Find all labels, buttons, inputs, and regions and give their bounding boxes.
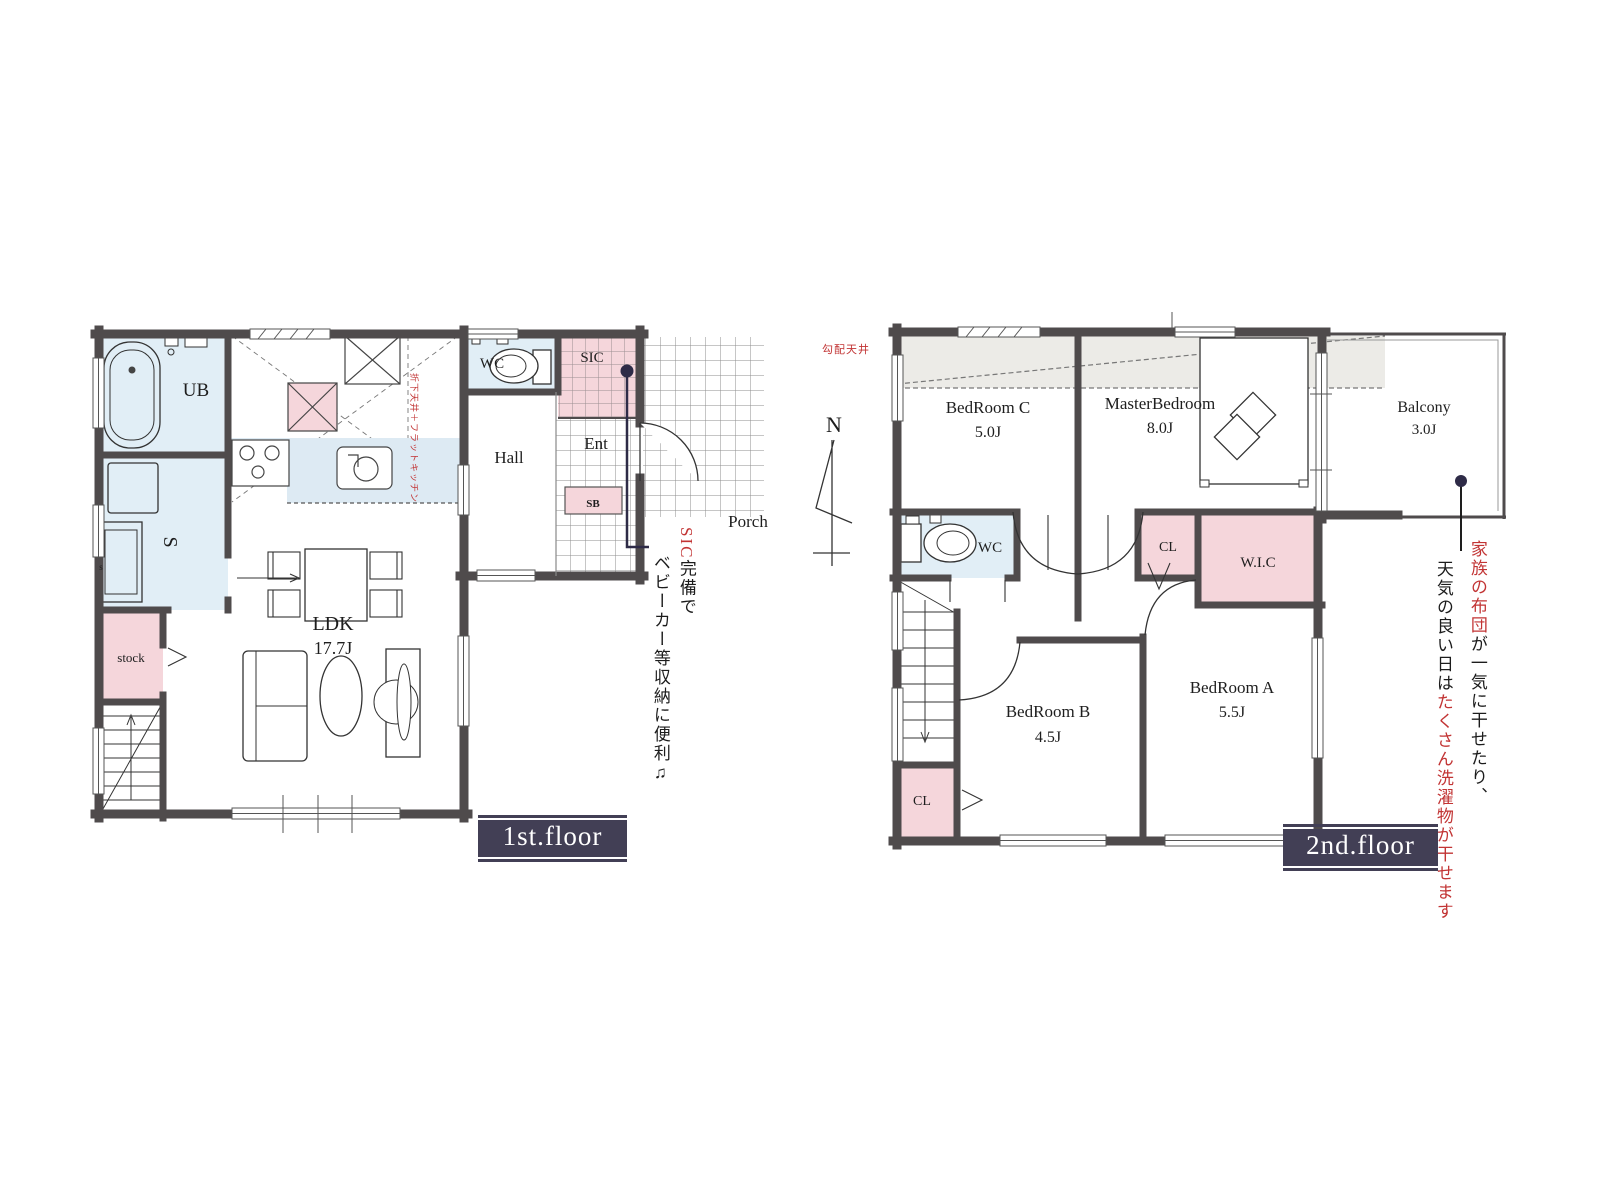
stairs-icon bbox=[99, 702, 163, 816]
balcony-annotation-col2-black: 天気の良い日は bbox=[1434, 560, 1453, 693]
room-label-wc: WC bbox=[480, 356, 504, 372]
nameplate-rule-top bbox=[478, 815, 627, 818]
compass-north-icon: N bbox=[813, 412, 852, 566]
room-label-wc2: WC bbox=[978, 540, 1002, 556]
door-arc-bedroom-b bbox=[959, 642, 1020, 700]
balcony-annotation-col1: 家族の布団が一気に干せたり、 bbox=[1468, 540, 1486, 806]
nameplate-rule-bottom bbox=[1283, 868, 1438, 871]
balcony-annotation-col1-black: が一気に干せたり、 bbox=[1468, 635, 1487, 806]
floorplan-page: UB S s stock LDK 17.7J WC Hall Ent SIC S… bbox=[0, 0, 1599, 1199]
room-size-bedroom-b: 4.5J bbox=[1035, 729, 1061, 746]
room-size-balcony: 3.0J bbox=[1412, 422, 1437, 438]
room-label-sic: SIC bbox=[580, 350, 603, 366]
floor1-nameplate: 1st.floor bbox=[478, 813, 627, 864]
window-tag-s: s bbox=[99, 562, 103, 572]
floor2-labels: BedRoom C 5.0J MasterBedroom 8.0J Balcon… bbox=[913, 394, 1451, 809]
sic-annotation-rest: 完備で bbox=[677, 559, 696, 616]
room-label-stock: stock bbox=[117, 650, 145, 665]
room-label-cl-upper: CL bbox=[1159, 540, 1177, 555]
cl-door-chevron bbox=[962, 790, 982, 810]
room-size-ldk: 17.7J bbox=[314, 638, 353, 658]
room-label-wic: W.I.C bbox=[1240, 555, 1275, 571]
balcony-leader-line bbox=[1455, 475, 1467, 551]
coffee-table-icon bbox=[320, 656, 362, 736]
sloped-ceiling-note: 勾配天井 bbox=[822, 341, 870, 357]
room-size-bedroom-c: 5.0J bbox=[975, 424, 1001, 441]
door-arc-master bbox=[1078, 512, 1143, 574]
floor1-title: 1st.floor bbox=[478, 820, 627, 857]
room-size-master: 8.0J bbox=[1147, 420, 1173, 437]
floor2-nameplate: 2nd.floor bbox=[1283, 822, 1438, 873]
svg-text:N: N bbox=[826, 412, 842, 437]
kitchen-sink-icon bbox=[337, 447, 392, 489]
room-label-ub: UB bbox=[183, 380, 209, 401]
nameplate-rule-bottom bbox=[478, 859, 627, 862]
sic-annotation-col2: ベビーカー等収納に便利♫ bbox=[651, 554, 669, 784]
stock-door-chevron bbox=[168, 648, 186, 666]
sic-annotation-col1: SIC完備で bbox=[677, 527, 695, 616]
room-label-s: S bbox=[159, 536, 181, 547]
stairs-icon bbox=[897, 580, 957, 742]
room-size-bedroom-a: 5.5J bbox=[1219, 704, 1245, 721]
room-label-master: MasterBedroom bbox=[1105, 394, 1215, 413]
kitchen-ceiling-note: 折下天井＋フラットキッチン bbox=[408, 373, 421, 503]
room-label-balcony: Balcony bbox=[1397, 399, 1450, 416]
room-label-hall: Hall bbox=[494, 448, 524, 467]
sloped-ceiling-band bbox=[897, 336, 1385, 388]
kitchen-area bbox=[230, 336, 460, 503]
sic-annotation-highlight: SIC bbox=[677, 527, 696, 559]
room-label-ent: Ent bbox=[584, 434, 608, 453]
room-label-porch: Porch bbox=[728, 512, 768, 531]
dining-table-icon bbox=[268, 549, 402, 621]
door-arc-bedroom-c bbox=[1013, 512, 1078, 574]
room-label-bedroom-b: BedRoom B bbox=[1006, 702, 1091, 721]
room-label-ldk: LDK bbox=[312, 613, 354, 635]
room-label-sb: SB bbox=[586, 498, 600, 510]
floor1-plan: UB S s stock LDK 17.7J WC Hall Ent SIC S… bbox=[80, 310, 780, 870]
balcony-annotation-col2-red: たくさん洗濯物が干せます bbox=[1434, 693, 1453, 921]
room-label-bedroom-a: BedRoom A bbox=[1190, 678, 1275, 697]
nameplate-rule-top bbox=[1283, 824, 1438, 827]
door-arc-bedroom-a bbox=[1145, 580, 1196, 635]
stove-icon bbox=[232, 440, 289, 486]
bed-icon bbox=[1200, 338, 1308, 487]
room-label-bedroom-c: BedRoom C bbox=[946, 398, 1031, 417]
balcony-annotation-col1-red: 家族の布団 bbox=[1468, 540, 1487, 635]
room-label-cl-lower: CL bbox=[913, 794, 931, 809]
floor2-title: 2nd.floor bbox=[1283, 829, 1438, 866]
sofa-icon bbox=[243, 651, 307, 761]
tv-board-icon bbox=[374, 649, 420, 757]
